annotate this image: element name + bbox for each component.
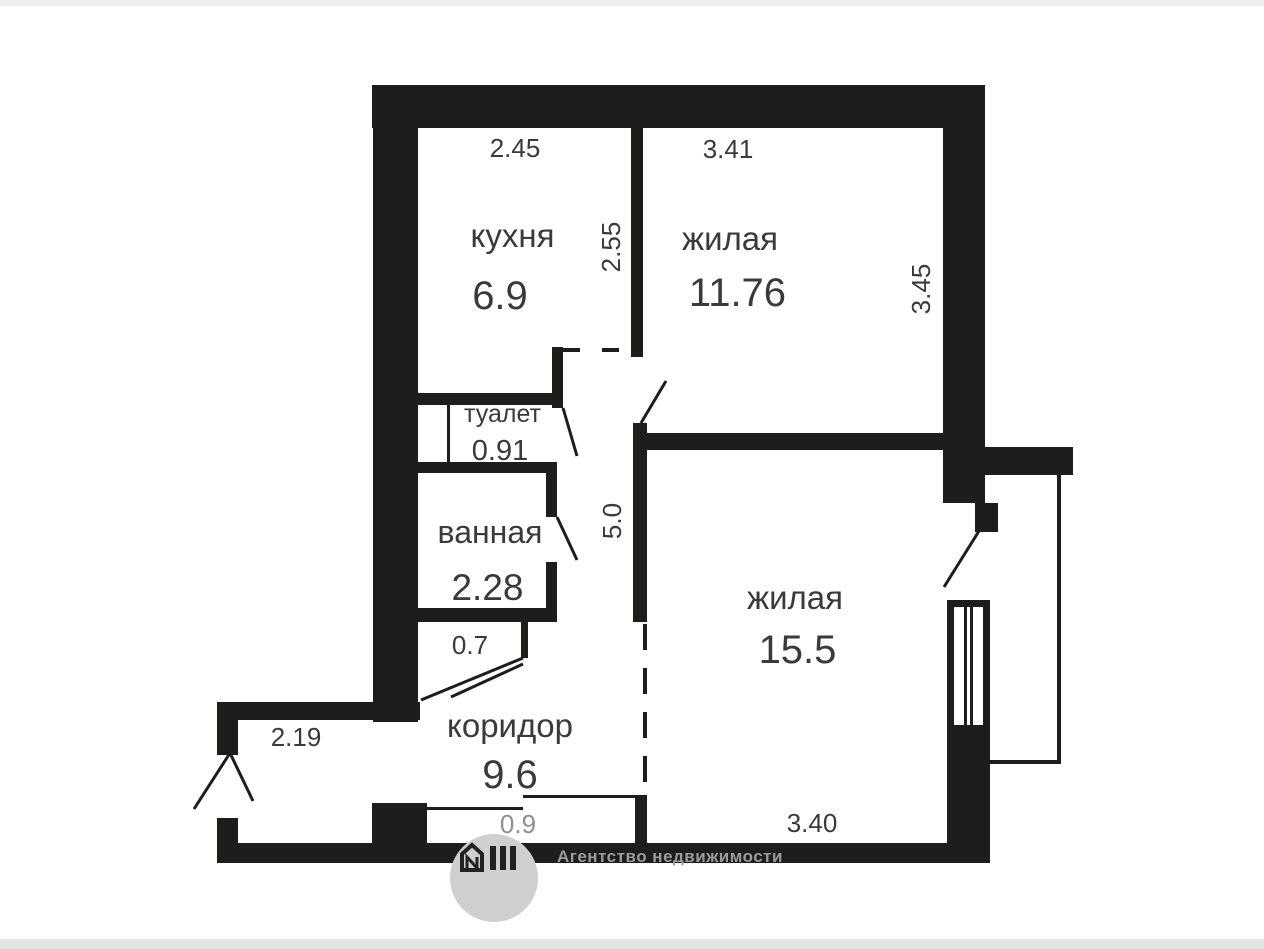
dim-corridor-length: 5.0	[599, 471, 625, 571]
toilet-label: туалет	[450, 402, 555, 427]
dim-living2-width: 3.40	[762, 810, 862, 836]
living1-label: жилая	[650, 222, 810, 255]
floor-plan: кухня 6.9 жилая 11.76 туалет 0.91 ванная…	[0, 0, 1264, 949]
bath-label: ванная	[415, 516, 565, 548]
entry-door-swing-right	[230, 753, 253, 801]
dim-living1-depth: 3.45	[908, 239, 934, 339]
living2-area: 15.5	[720, 630, 875, 670]
dim-entry-width: 2.19	[246, 724, 346, 750]
corridor-label: коридор	[425, 709, 595, 742]
agency-watermark-text: Агентство недвижимости	[557, 847, 783, 867]
living2-label: жилая	[715, 581, 875, 614]
dim-kitchen-width: 2.45	[465, 135, 565, 161]
bath-passage-leaf-2	[451, 664, 523, 697]
entry-door-swing-left	[194, 753, 230, 809]
bath-passage-leaf-1	[421, 658, 523, 700]
dim-kitchen-depth: 2.55	[598, 197, 624, 297]
kitchen-label: кухня	[445, 219, 580, 252]
kitchen-area: 6.9	[450, 276, 550, 316]
dim-bath-passage: 0.7	[430, 632, 510, 658]
balcony-door-leaf	[944, 531, 979, 587]
toilet-door-leaf	[563, 408, 577, 456]
toilet-area: 0.91	[450, 437, 550, 466]
bath-area: 2.28	[430, 569, 545, 606]
door-lines	[0, 0, 1264, 949]
dim-threshold: 0.9	[478, 811, 558, 837]
living1-area: 11.76	[655, 273, 820, 313]
living1-door-leaf	[641, 381, 666, 423]
dim-living1-width: 3.41	[678, 136, 778, 162]
agency-logo-icon	[458, 842, 530, 872]
corridor-area: 9.6	[450, 755, 570, 795]
